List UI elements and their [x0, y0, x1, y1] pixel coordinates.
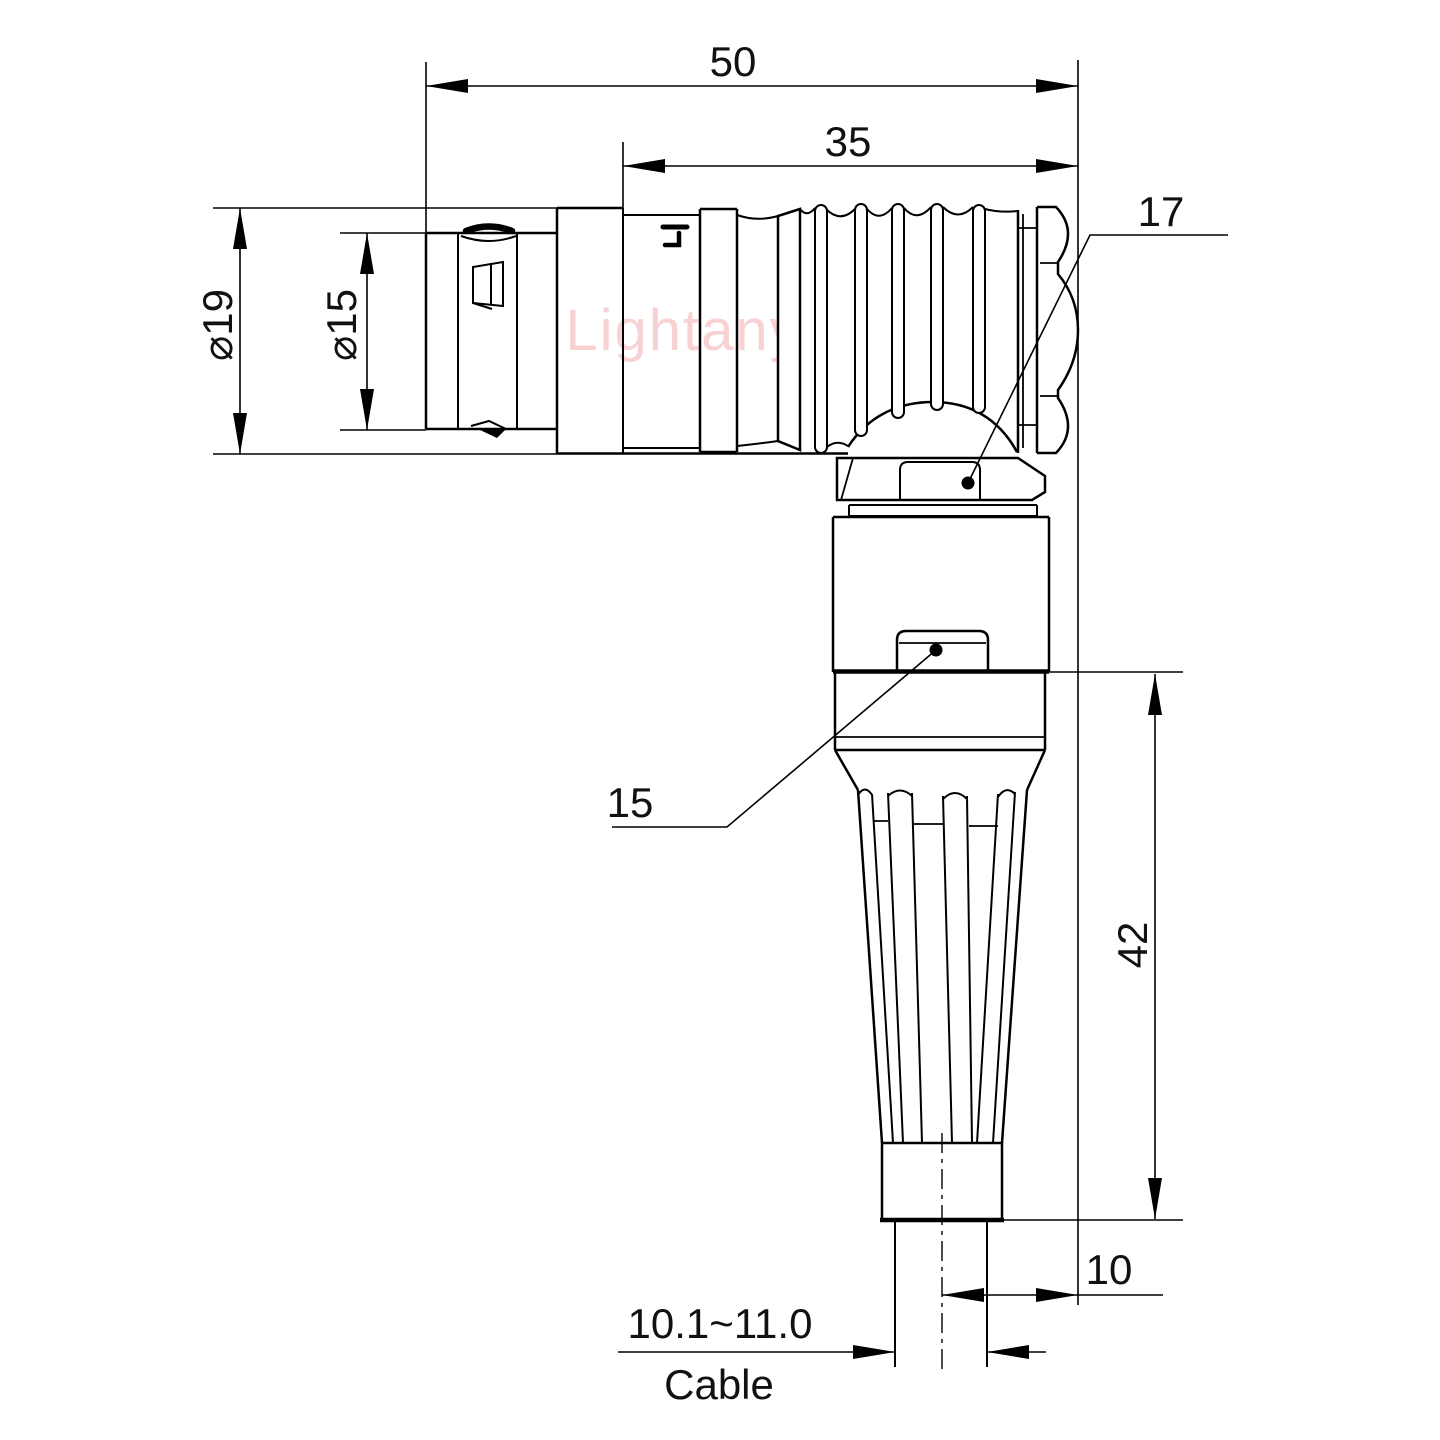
dim-label-42: 42 [1109, 922, 1156, 969]
cable-label: Cable [664, 1361, 774, 1408]
arrowhead-bottom [233, 413, 247, 454]
dimension-body-length-35: 35 [623, 118, 1078, 209]
extension-lines [213, 208, 557, 454]
leader-line [968, 235, 1228, 483]
top-dip-3 [867, 208, 892, 216]
arrowhead-bottom [360, 389, 374, 430]
arrowhead-right [1036, 79, 1078, 93]
elbow-band-chamfer [841, 458, 853, 500]
dim-label-dia19: ⌀19 [194, 289, 241, 361]
elbow-shoulder-dome [848, 402, 1017, 452]
boot-left-silhouette [858, 790, 882, 1143]
dim-label-10: 10 [1086, 1246, 1133, 1293]
lower-body-edges [835, 672, 1045, 750]
dimension-outer-diameter-19: ⌀19 [194, 208, 557, 454]
neck-lines [1018, 228, 1037, 425]
callout-label-15: 15 [607, 779, 654, 826]
dim-label-35: 35 [825, 118, 872, 165]
top-dip-4 [904, 207, 931, 215]
latch-bump-underline [461, 236, 516, 241]
arrowhead-left [942, 1288, 984, 1302]
dim-label-50: 50 [710, 38, 757, 85]
laser-marking [663, 227, 687, 245]
grip-rib-5 [973, 205, 985, 413]
boot-rib-2 [888, 793, 922, 1143]
boot-right-silhouette [1002, 790, 1027, 1143]
top-dip-2 [827, 209, 855, 216]
taper-shoulders [835, 750, 1045, 790]
boot-rib-caps [858, 790, 1015, 800]
latch-bump [466, 227, 512, 232]
cable-end [880, 1133, 1004, 1372]
leader-dot [930, 644, 943, 657]
top-dip-0 [737, 215, 778, 219]
arrowhead-right [987, 1345, 1029, 1359]
grip-rib-1 [815, 205, 827, 453]
body-latch-tab [897, 631, 988, 672]
boot-rib-4 [977, 792, 1015, 1143]
dim-label-dia15: ⌀15 [318, 289, 365, 361]
strain-relief-boot [858, 790, 1027, 1144]
grip-band [778, 209, 800, 450]
grip-section [737, 204, 1018, 453]
top-dip-5 [943, 207, 973, 215]
bottom-dip-2 [827, 443, 848, 447]
arrowhead-left [623, 159, 665, 173]
elbow-washer-ring [849, 505, 1037, 516]
leader-dot [962, 477, 975, 490]
arrowhead-top [360, 233, 374, 274]
hex-nut [1018, 207, 1078, 453]
arrowhead-bottom [1148, 1178, 1162, 1219]
callout-17-nut-flat: 17 [962, 188, 1229, 490]
callout-label-17: 17 [1138, 188, 1185, 235]
arrowhead-left [853, 1345, 895, 1359]
grip-rib-3 [892, 204, 904, 418]
release-window [473, 262, 503, 309]
grip-rib-4 [931, 204, 943, 410]
top-line-rear [985, 209, 1018, 212]
elbow-flat-band [837, 458, 1045, 500]
boot-rib-3 [943, 796, 972, 1143]
technical-drawing-page: Lightany [0, 0, 1440, 1440]
elbow-housing [833, 458, 1049, 790]
front-barrel [426, 227, 557, 439]
window-outline [473, 262, 503, 306]
bottom-dip-0 [737, 441, 778, 446]
arrowhead-top [1148, 674, 1162, 715]
connector-dimension-drawing: Lightany [0, 0, 1440, 1440]
dimension-height-42: 42 [1004, 672, 1183, 1220]
dim-label-cable-range: 10.1~11.0 [628, 1300, 813, 1347]
dimension-cable-offset-10: 10 [942, 1246, 1163, 1302]
arrowhead-left [426, 79, 468, 93]
arrowhead-right [1036, 1288, 1078, 1302]
arrowhead-right [1036, 159, 1078, 173]
top-dip-1 [800, 208, 815, 213]
notch-flap [480, 429, 506, 438]
grip-rib-2 [855, 204, 867, 436]
boot-inner-shelves [874, 821, 998, 826]
arrowhead-top [233, 208, 247, 249]
connector-side-view [426, 204, 1078, 1372]
marking-hook [665, 233, 679, 245]
dimension-inner-diameter-15: ⌀15 [318, 233, 426, 430]
watermark-text: Lightany [565, 298, 800, 363]
dimension-cable-diameter: 10.1~11.0 Cable [618, 1300, 1046, 1408]
